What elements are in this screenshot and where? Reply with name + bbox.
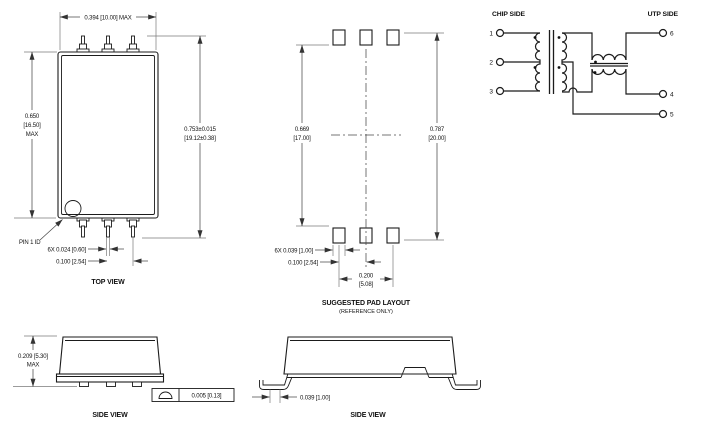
package-body bbox=[58, 52, 158, 218]
polarity-dot bbox=[594, 71, 597, 74]
dim-height-text: 0.209 [5.30] bbox=[18, 354, 48, 360]
pad bbox=[387, 228, 399, 243]
pad bbox=[333, 228, 345, 243]
dim-lead-span-in: 0.753±0.015 bbox=[184, 127, 216, 133]
polarity-dot bbox=[558, 66, 561, 69]
base-flange bbox=[57, 374, 164, 382]
lead-bottom-2 bbox=[102, 217, 114, 237]
pin-terminal-5 bbox=[660, 111, 667, 118]
pad bbox=[333, 30, 345, 45]
coplanarity-frame: 0.005 [0.13] bbox=[152, 389, 234, 402]
dim-rows-inner: 0.669 [17.00] bbox=[288, 45, 329, 226]
polarity-dot bbox=[534, 36, 537, 39]
body-profile bbox=[60, 337, 161, 374]
chip-side-label: CHIP SIDE bbox=[492, 11, 526, 18]
top-view-label: TOP VIEW bbox=[91, 279, 125, 286]
lead-bottom-3 bbox=[127, 217, 139, 237]
wire-centertap-pin5 bbox=[562, 62, 660, 114]
dim-lead-width-text: 6X 0.024 [0.60] bbox=[48, 248, 87, 254]
dim-standoff-text: 0.039 [1.00] bbox=[300, 396, 330, 402]
pin-number-6: 6 bbox=[670, 31, 674, 38]
polarity-dot bbox=[594, 61, 597, 64]
lead-bottom-1 bbox=[77, 217, 89, 237]
side-view-front-label: SIDE VIEW bbox=[92, 412, 128, 419]
gullwing-lead-right bbox=[452, 374, 477, 386]
pin-number-5: 5 bbox=[670, 112, 674, 119]
pin-terminal-1 bbox=[497, 30, 504, 37]
lead-foot bbox=[133, 382, 142, 387]
dim-rows-outer-in: 0.787 bbox=[430, 127, 445, 133]
dim-lead-span-mm: [19.12±0.38] bbox=[184, 136, 216, 142]
side-view-long-label: SIDE VIEW bbox=[350, 412, 386, 419]
utp-side-label: UTP SIDE bbox=[648, 11, 679, 18]
dim-body-height-mm: [16.50] bbox=[23, 123, 41, 129]
dim-standoff: 0.039 [1.00] bbox=[252, 390, 330, 404]
pad-layout-label: SUGGESTED PAD LAYOUT bbox=[322, 300, 411, 307]
pin-number-1: 1 bbox=[489, 31, 493, 38]
dim-lead-pitch-text: 0.100 [2.54] bbox=[56, 260, 86, 266]
dim-pad-width-text: 6X 0.039 [1.00] bbox=[275, 249, 314, 255]
pin-terminal-4 bbox=[660, 91, 667, 98]
choke-bottom-winding bbox=[592, 69, 626, 75]
pin-terminal-2 bbox=[497, 59, 504, 66]
pin-number-2: 2 bbox=[489, 60, 493, 67]
side-view-front: 0.209 [5.30] MAX 0.005 [0.13] SIDE VIEW bbox=[12, 336, 234, 419]
schematic: CHIP SIDE UTP SIDE 1 2 3 bbox=[489, 11, 678, 119]
dim-pad-span-mm: [5.08] bbox=[359, 282, 374, 288]
polarity-dot bbox=[558, 36, 561, 39]
common-mode-choke bbox=[590, 54, 628, 74]
drawing-canvas: 0.394 [10.00] MAX 0.650 [16.50] MAX 0.75… bbox=[0, 0, 704, 425]
polarity-dot bbox=[534, 66, 537, 69]
top-view: 0.394 [10.00] MAX 0.650 [16.50] MAX 0.75… bbox=[14, 12, 222, 286]
side-view-long: 0.039 [1.00] SIDE VIEW bbox=[252, 337, 481, 419]
dim-body-height-in: 0.650 bbox=[25, 114, 40, 120]
dim-rows-inner-mm: [17.00] bbox=[293, 136, 311, 142]
pad bbox=[387, 30, 399, 45]
dim-rows-outer: 0.787 [20.00] bbox=[404, 33, 452, 240]
lead-top-2 bbox=[102, 36, 114, 53]
dim-pad-width: 6X 0.039 [1.00] bbox=[275, 245, 360, 256]
dim-lead-width: 6X 0.024 [0.60] bbox=[48, 237, 124, 256]
dim-body-height-max: MAX bbox=[26, 132, 39, 138]
pad bbox=[360, 30, 372, 45]
pin-number-4: 4 bbox=[670, 92, 674, 99]
dim-pad-span-in: 0.200 bbox=[359, 274, 374, 280]
wire-bottom-out bbox=[626, 69, 660, 94]
pad-layout: 0.669 [17.00] 0.787 [20.00] 6X 0.039 [1.… bbox=[275, 30, 452, 315]
body-profile-long bbox=[284, 337, 456, 374]
lead-top-3 bbox=[127, 36, 139, 53]
dim-height-max: MAX bbox=[27, 363, 40, 369]
coplanarity-value: 0.005 [0.13] bbox=[192, 394, 222, 400]
dim-pad-pitch-text: 0.100 [2.54] bbox=[288, 261, 318, 267]
lead-top-1 bbox=[77, 36, 89, 53]
lead-foot bbox=[107, 382, 116, 387]
dim-rows-inner-in: 0.669 bbox=[295, 127, 310, 133]
pin-terminal-3 bbox=[497, 88, 504, 95]
choke-top-winding bbox=[592, 54, 626, 60]
pin1-callout: PIN 1 ID bbox=[19, 220, 63, 247]
dim-rows-outer-mm: [20.00] bbox=[428, 136, 446, 142]
pin-number-3: 3 bbox=[489, 89, 493, 96]
wire-top-out bbox=[626, 33, 660, 60]
package-outline-drawing: 0.394 [10.00] MAX 0.650 [16.50] MAX 0.75… bbox=[0, 0, 704, 425]
pin-terminal-6 bbox=[660, 30, 667, 37]
pin1-label: PIN 1 ID bbox=[19, 240, 41, 246]
lead-foot bbox=[80, 382, 89, 387]
pad-layout-sublabel: (REFERENCE ONLY) bbox=[339, 309, 393, 315]
dim-body-height: 0.650 [16.50] MAX bbox=[14, 52, 57, 218]
gullwing-lead-left bbox=[263, 374, 288, 386]
dim-body-width-text: 0.394 [10.00] MAX bbox=[84, 16, 131, 22]
